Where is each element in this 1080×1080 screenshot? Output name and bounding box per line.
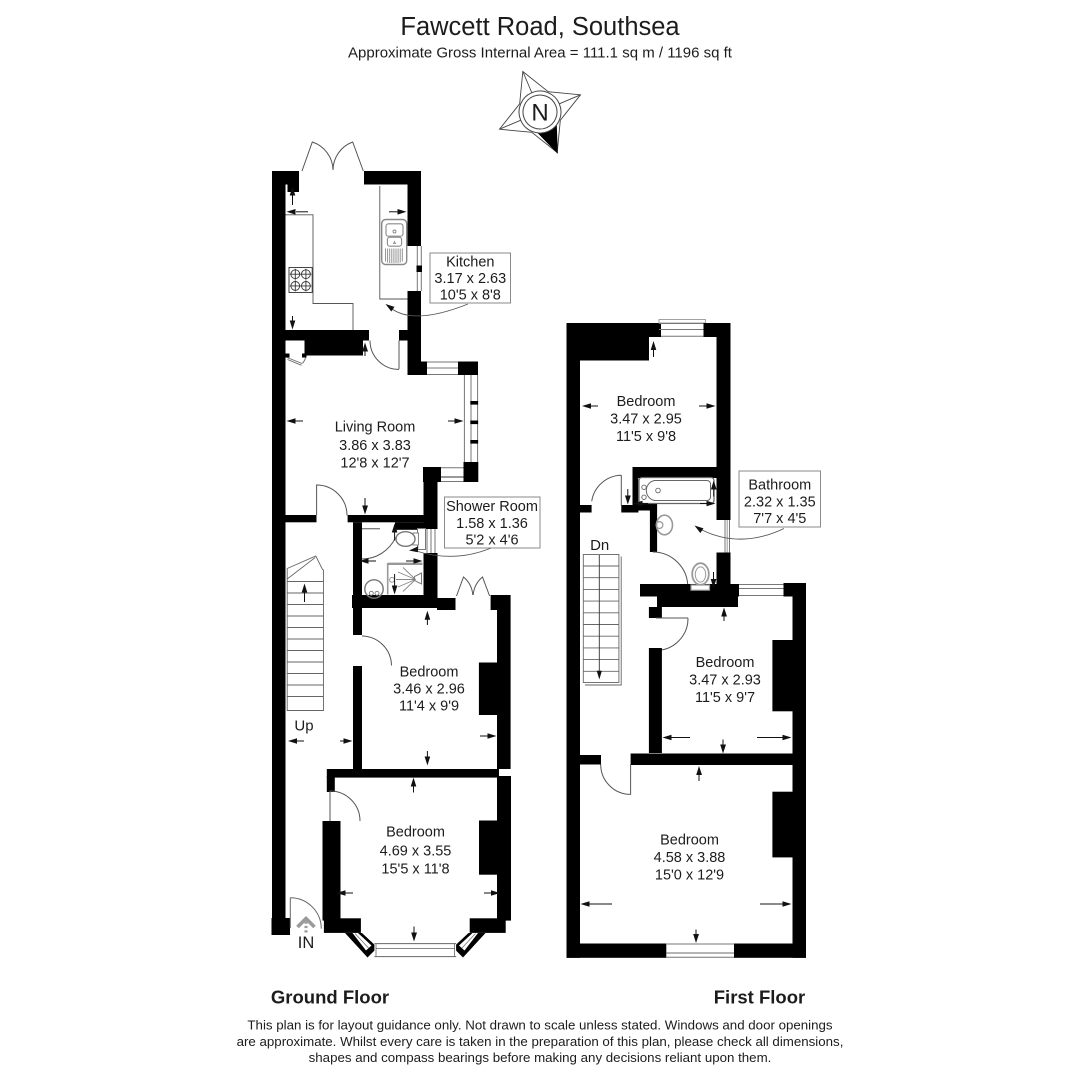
svg-text:3.47 x 2.93: 3.47 x 2.93 <box>689 673 761 689</box>
svg-text:3.86 x 3.83: 3.86 x 3.83 <box>339 438 411 454</box>
svg-text:Bedroom: Bedroom <box>696 655 755 671</box>
svg-text:Bedroom: Bedroom <box>400 664 459 680</box>
svg-text:Ground Floor: Ground Floor <box>271 987 389 1008</box>
svg-text:7'7 x 4'5: 7'7 x 4'5 <box>753 511 806 527</box>
svg-text:N: N <box>531 100 548 127</box>
svg-text:Bathroom: Bathroom <box>748 478 811 494</box>
svg-text:Up: Up <box>294 718 313 735</box>
svg-text:Fawcett Road, Southsea: Fawcett Road, Southsea <box>400 13 680 41</box>
svg-text:Living Room: Living Room <box>335 420 416 436</box>
svg-text:3.17 x 2.63: 3.17 x 2.63 <box>434 271 506 287</box>
svg-text:Approximate Gross Internal Are: Approximate Gross Internal Area = 111.1 … <box>348 45 733 62</box>
svg-text:Bedroom: Bedroom <box>386 825 445 841</box>
svg-text:10'5 x 8'8: 10'5 x 8'8 <box>440 288 501 304</box>
svg-text:This plan is for layout guidan: This plan is for layout guidance only. N… <box>247 1018 832 1033</box>
svg-text:3.47 x 2.95: 3.47 x 2.95 <box>610 412 682 428</box>
svg-text:3.46 x 2.96: 3.46 x 2.96 <box>393 681 465 697</box>
svg-text:Dn: Dn <box>590 537 609 554</box>
svg-text:are approximate. Whilst every: are approximate. Whilst every care is ta… <box>237 1034 844 1049</box>
svg-text:15'0 x 12'9: 15'0 x 12'9 <box>655 868 724 884</box>
svg-text:Bedroom: Bedroom <box>617 394 676 410</box>
svg-text:4.69 x 3.55: 4.69 x 3.55 <box>380 843 452 859</box>
svg-text:Shower Room: Shower Room <box>446 499 538 515</box>
svg-text:12'8 x 12'7: 12'8 x 12'7 <box>340 456 409 472</box>
svg-text:15'5 x 11'8: 15'5 x 11'8 <box>381 862 449 878</box>
svg-text:11'4 x 9'9: 11'4 x 9'9 <box>399 698 459 714</box>
svg-text:11'5 x 9'8: 11'5 x 9'8 <box>616 429 676 445</box>
svg-text:IN: IN <box>298 934 315 952</box>
svg-text:5'2 x 4'6: 5'2 x 4'6 <box>465 533 518 549</box>
svg-text:Kitchen: Kitchen <box>446 255 494 271</box>
svg-text:2.32 x 1.35: 2.32 x 1.35 <box>744 495 816 511</box>
svg-text:shapes and compass bearings be: shapes and compass bearings before makin… <box>309 1050 772 1065</box>
svg-text:4.58 x 3.88: 4.58 x 3.88 <box>654 850 726 866</box>
svg-text:1.58 x 1.36: 1.58 x 1.36 <box>456 516 528 532</box>
svg-text:Bedroom: Bedroom <box>660 833 719 849</box>
svg-text:11'5 x 9'7: 11'5 x 9'7 <box>695 690 755 706</box>
svg-text:First Floor: First Floor <box>714 987 805 1008</box>
